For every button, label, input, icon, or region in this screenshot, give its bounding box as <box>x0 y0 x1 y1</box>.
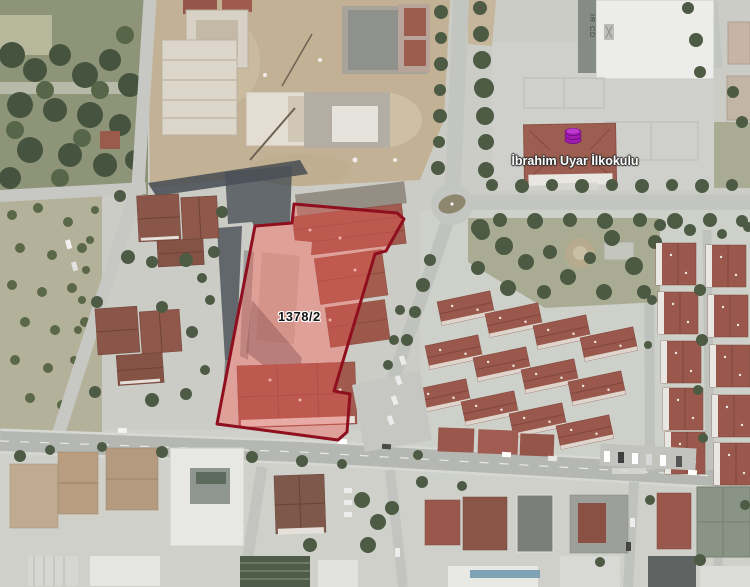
roundabout <box>431 183 473 225</box>
school-poi-icon[interactable] <box>562 126 584 146</box>
map-canvas[interactable]: IR CD <box>0 0 750 587</box>
forest-northwest <box>0 0 148 195</box>
gym-roof-text: IR CD <box>588 14 595 38</box>
olive-grove-west <box>0 190 102 435</box>
satellite-imagery: IR CD <box>0 0 750 587</box>
